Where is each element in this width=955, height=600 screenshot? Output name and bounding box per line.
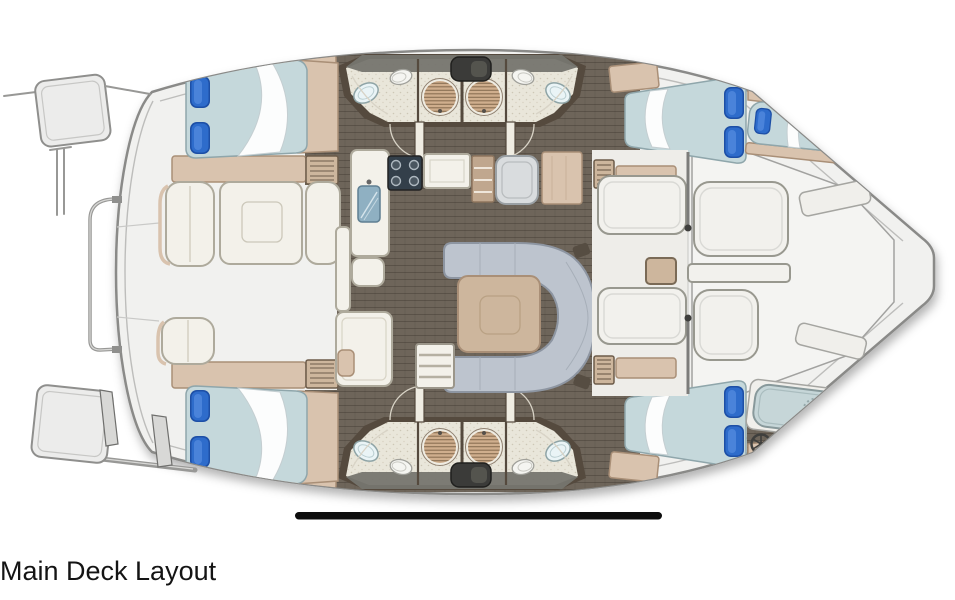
fridge-icon (496, 156, 538, 204)
bow-platform (34, 74, 112, 148)
cockpit-bench (306, 182, 340, 264)
cockpit-sofa (160, 182, 214, 266)
aft-sofa (598, 288, 686, 344)
scale-bar (295, 512, 662, 520)
aft-saloon-zone (592, 150, 692, 396)
galley-drawers (472, 156, 494, 202)
cockpit-seat (158, 318, 214, 364)
caption: Main Deck Layout (0, 556, 216, 587)
aft-sofa (598, 176, 686, 234)
stairs-shelf (416, 344, 454, 388)
deck-plan-drawing (0, 0, 955, 600)
boat-floor-plan: Main Deck Layout (0, 0, 955, 600)
stove-icon (388, 156, 422, 190)
saloon-table (458, 276, 540, 352)
aft-cross-bench (688, 264, 790, 282)
aft-bench (694, 182, 788, 256)
aft-side-table (646, 258, 676, 284)
bed-top-left (186, 55, 339, 158)
bed-bottom-left (186, 386, 339, 489)
aft-bench (694, 290, 758, 360)
single-berth (745, 101, 866, 166)
saloon (444, 242, 594, 392)
cockpit-table (220, 182, 302, 264)
saloon-door-post (336, 227, 350, 311)
galley-sink-icon (358, 180, 380, 223)
galley-counter (542, 152, 582, 204)
